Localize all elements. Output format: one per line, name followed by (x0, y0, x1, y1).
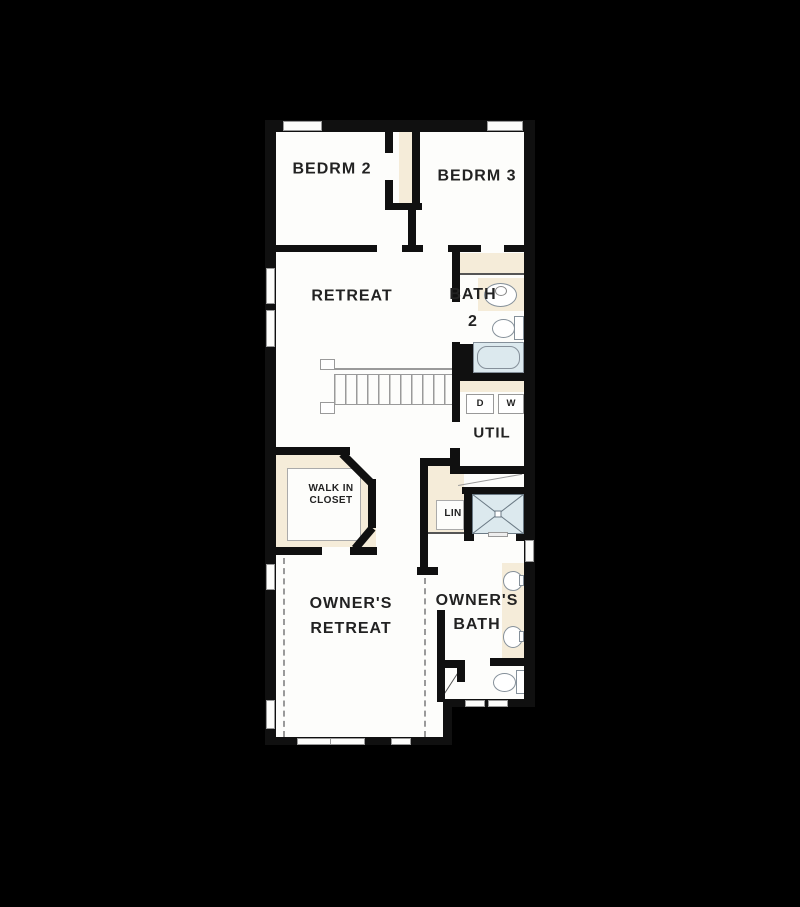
utility-counter (460, 381, 524, 392)
window-icon-bottom-small (391, 738, 411, 745)
wall-water-closet-stub (457, 668, 465, 682)
bedroom3-closet-fill (458, 253, 524, 273)
bathtub-inner-line (477, 346, 520, 369)
tray-ceiling-dashed-line-left (283, 558, 285, 737)
bath2-sink-faucet (495, 286, 507, 296)
wall-closet-bottom-1 (265, 547, 322, 555)
window-icon-bath-bottom-a (465, 700, 485, 707)
room-label-utility: UTIL (473, 421, 510, 446)
wall-shower-bottom-left (464, 534, 474, 541)
wall-closet-top (265, 447, 350, 455)
floor-area-lower-left (276, 699, 443, 737)
washer-label: W (507, 399, 516, 409)
window-icon-bottom-long (297, 738, 365, 745)
owners-toilet-icon (493, 673, 516, 692)
stairs-newel-top (320, 359, 335, 370)
wall-closet-bottom-2 (350, 547, 377, 555)
window-icon-bath-bottom-b (488, 700, 508, 707)
room-label-retreat: RETREAT (311, 284, 392, 309)
wall-tub-head (460, 344, 473, 373)
wall-bedrooms-bottom-2 (448, 245, 481, 252)
room-label-owners-retreat: OWNER'SRETREAT (310, 591, 393, 641)
wall-water-closet-left (437, 668, 445, 702)
wall-vestibule-jog (417, 567, 438, 575)
wall-bed2-closet-b (385, 180, 393, 203)
stairs-newel-bottom (320, 402, 335, 414)
bedroom2-closet-fill (399, 132, 412, 203)
stairs-top-rail (334, 368, 452, 370)
window-icon-left-a (266, 268, 275, 304)
wall-bed3-left-lower (408, 210, 416, 245)
room-label-bath2: BATH2 (449, 281, 496, 335)
room-label-bedroom2: BEDRM 2 (292, 157, 371, 182)
window-icon-right-small (525, 540, 534, 562)
wall-vestibule-vertical (420, 458, 428, 575)
room-label-bedroom3: BEDRM 3 (437, 164, 516, 189)
window-icon-left-c (266, 564, 275, 590)
wall-owners-bath-bottom-right (490, 658, 524, 666)
wall-closet-right (368, 479, 376, 528)
bathtub-icon (473, 342, 524, 373)
room-label-walk-in-closet: WALK INCLOSET (308, 483, 353, 507)
wall-water-closet-top (437, 660, 465, 668)
exterior-wall-left (265, 120, 276, 745)
wall-shower-bottom-right (516, 534, 524, 541)
wall-bed3-left-upper (412, 132, 420, 203)
wall-shower-left (464, 487, 472, 536)
tray-ceiling-dashed-line-right (424, 578, 426, 737)
shower-door-track (488, 532, 508, 537)
wall-bedrooms-bottom-1 (265, 245, 377, 252)
wall-util-bottom (450, 466, 535, 474)
window-icon-left-d (266, 700, 275, 729)
bath2-toilet-tank (514, 316, 524, 340)
wall-bath2-util-divider (452, 373, 535, 381)
exterior-wall-right (524, 120, 535, 707)
window-mullion (330, 739, 331, 744)
stairs-icon (334, 374, 452, 405)
wall-bedrooms-bottom-foot (402, 245, 423, 252)
wall-closet-cap (385, 203, 422, 210)
wall-vestibule-top (420, 458, 450, 466)
wall-bath2-left-mid (452, 342, 460, 422)
room-label-owners-bath: OWNER'SBATH (436, 589, 519, 637)
wall-bed2-closet-a (385, 132, 393, 153)
linen-front-line (428, 532, 464, 534)
window-icon-top-left (283, 121, 322, 131)
window-icon-top-right (487, 121, 523, 131)
floor-plan-canvas: BEDRM 2 BEDRM 3 RETREAT BATH2 UTIL WALK … (0, 0, 800, 907)
shower-icon (472, 494, 524, 534)
room-label-linen: LIN (444, 508, 461, 520)
window-icon-left-b (266, 310, 275, 347)
dryer-label: D (477, 399, 484, 409)
wall-bedrooms-bottom-3 (504, 245, 535, 252)
bedroom3-closet-front-line (458, 273, 524, 275)
